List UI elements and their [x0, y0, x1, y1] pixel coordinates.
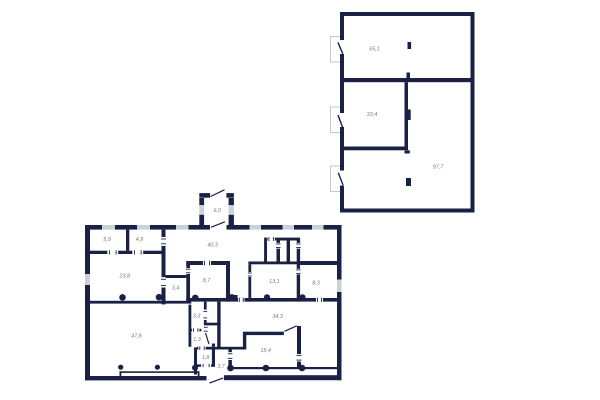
svg-text:5,9: 5,9 [103, 237, 111, 243]
svg-text:6,0: 6,0 [214, 208, 222, 214]
svg-text:8,7: 8,7 [203, 278, 211, 284]
svg-text:23,8: 23,8 [119, 274, 131, 280]
svg-text:3,4: 3,4 [172, 286, 180, 292]
svg-text:97,7: 97,7 [433, 165, 444, 171]
svg-text:13,1: 13,1 [269, 279, 280, 285]
svg-text:4,9: 4,9 [136, 237, 144, 243]
svg-text:3,7: 3,7 [217, 364, 225, 370]
svg-text:47,8: 47,8 [131, 334, 142, 340]
svg-text:1,8: 1,8 [202, 355, 210, 361]
svg-text:3,3: 3,3 [193, 314, 201, 320]
svg-text:33,4: 33,4 [367, 112, 378, 118]
svg-text:8,3: 8,3 [312, 280, 320, 286]
svg-text:40,3: 40,3 [207, 243, 218, 249]
svg-text:15,4: 15,4 [260, 348, 271, 354]
svg-text:65,1: 65,1 [369, 47, 380, 53]
svg-text:1,3: 1,3 [193, 337, 201, 343]
svg-text:34,3: 34,3 [272, 314, 283, 320]
